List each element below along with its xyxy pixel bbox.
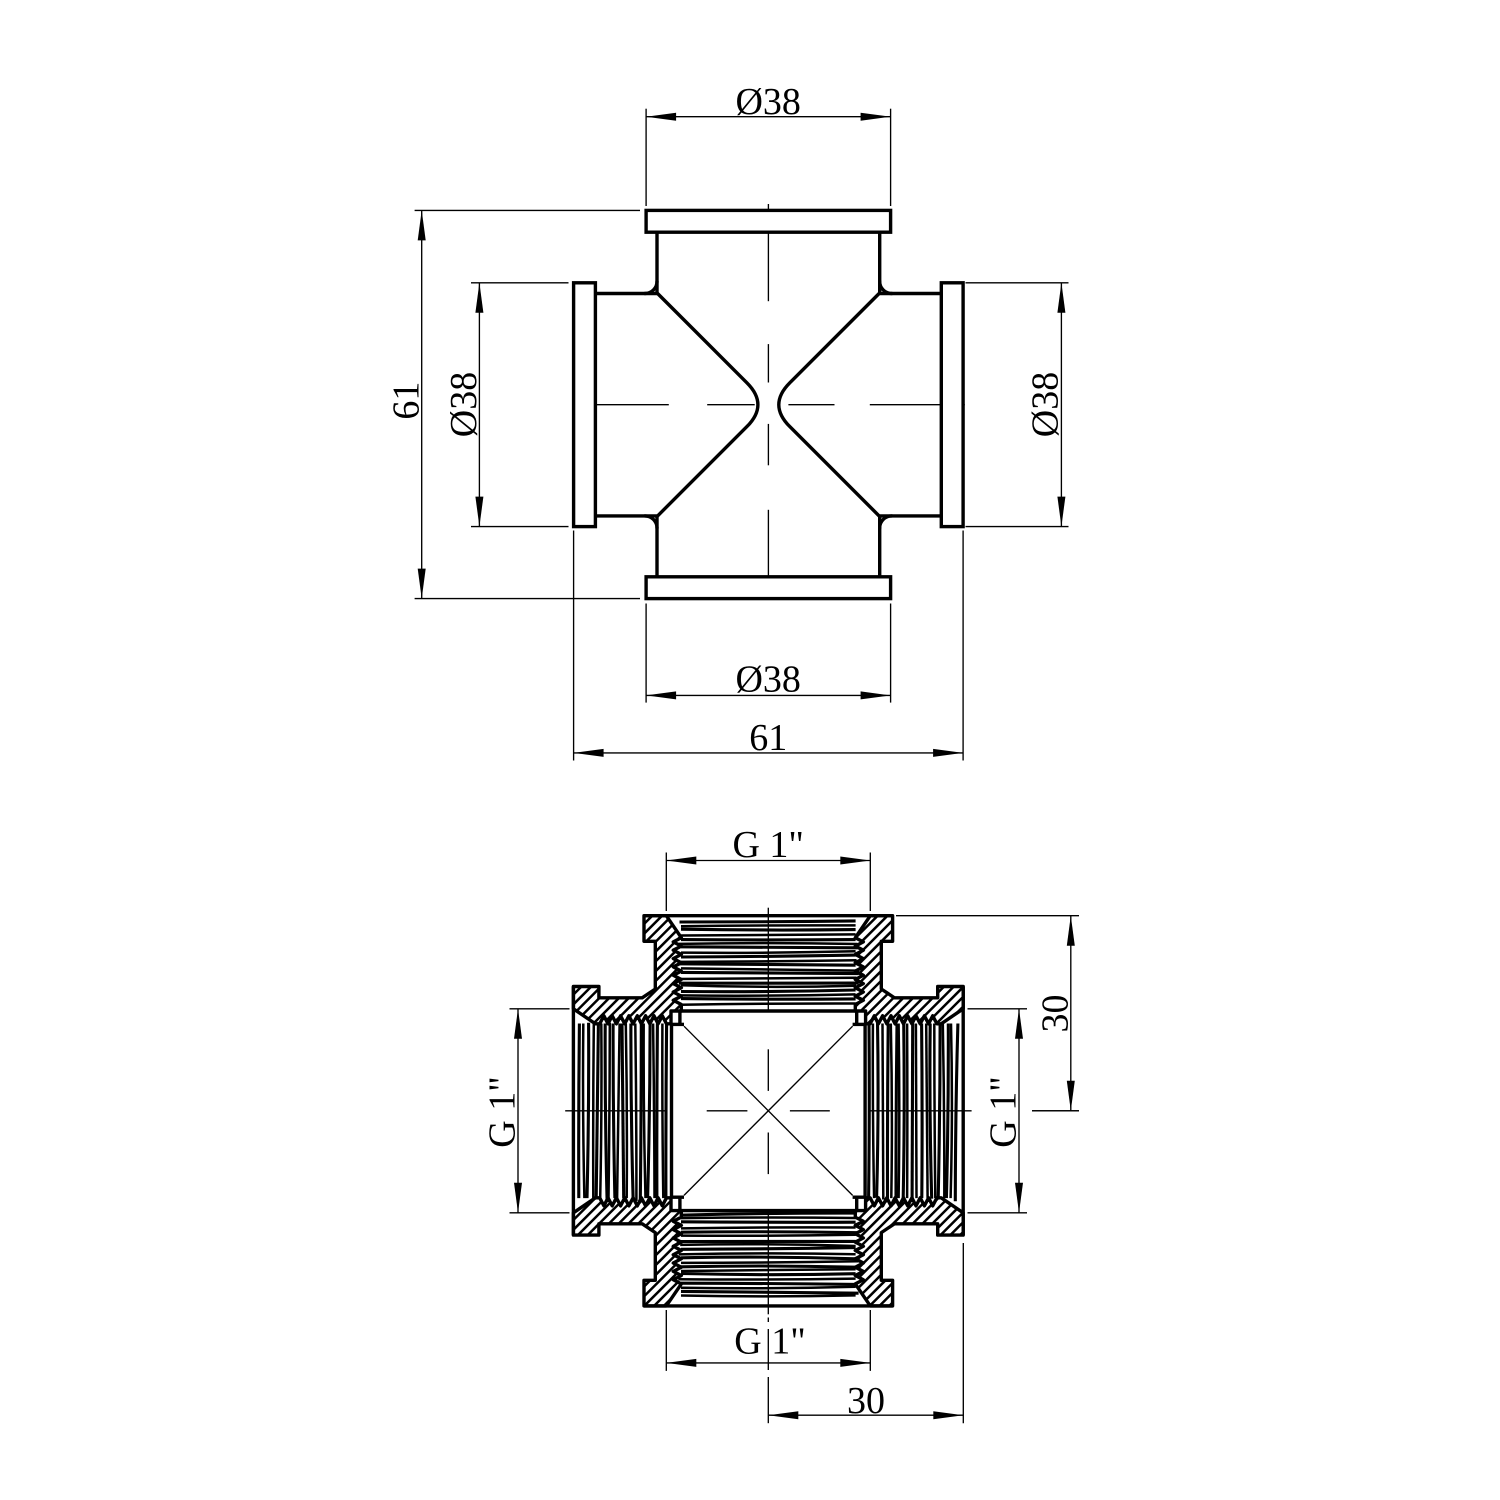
svg-text:G 1": G 1" (482, 1076, 524, 1147)
svg-text:30: 30 (1034, 995, 1076, 1033)
svg-text:61: 61 (749, 717, 787, 759)
svg-text:Ø38: Ø38 (735, 659, 800, 701)
svg-text:Ø38: Ø38 (1025, 372, 1067, 437)
svg-text:30: 30 (847, 1380, 885, 1422)
svg-text:G 1": G 1" (983, 1076, 1025, 1147)
svg-text:Ø38: Ø38 (735, 81, 800, 123)
svg-text:G 1": G 1" (734, 1321, 805, 1363)
svg-text:61: 61 (385, 382, 427, 420)
svg-text:G 1": G 1" (732, 824, 803, 866)
svg-text:Ø38: Ø38 (443, 372, 485, 437)
